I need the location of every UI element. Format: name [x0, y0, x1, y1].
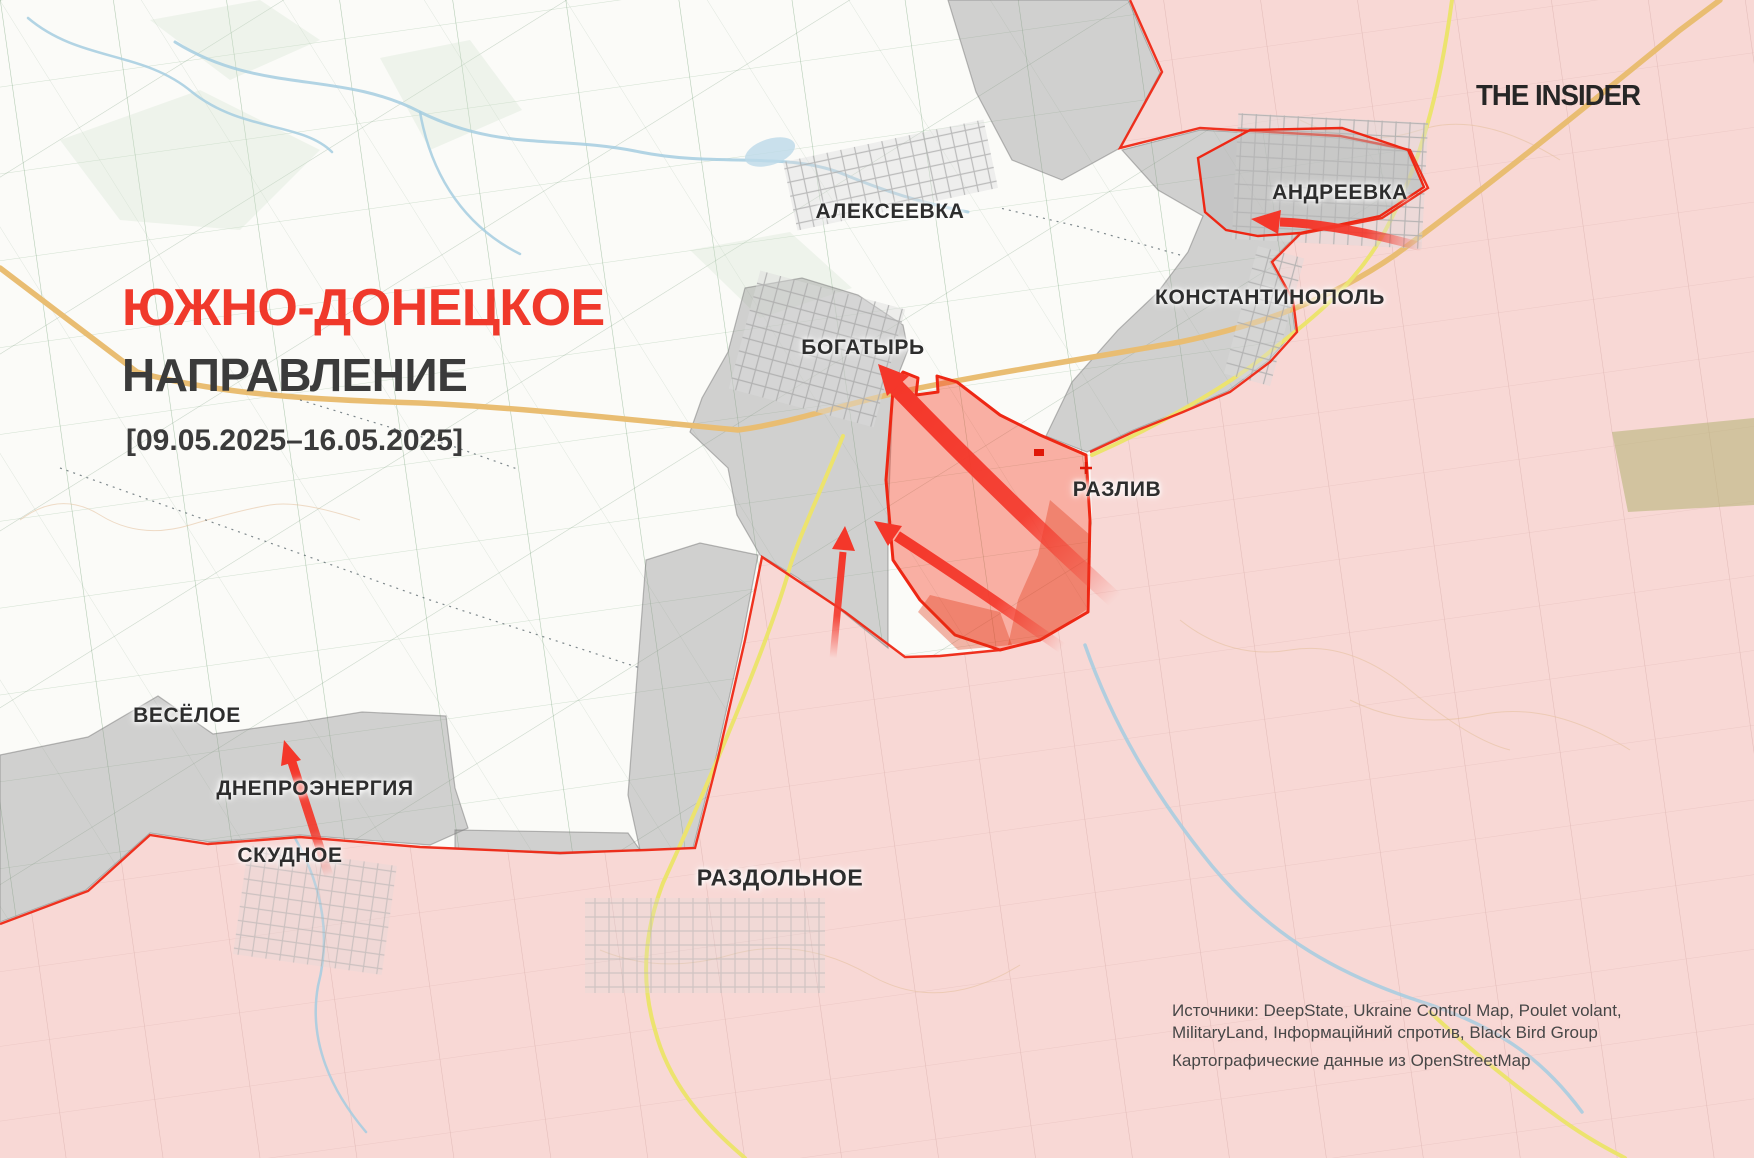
map-title-line1: ЮЖНО-ДОНЕЦКОЕ [122, 278, 605, 338]
map-date-range: [09.05.2025–16.05.2025] [126, 424, 463, 458]
town-label-vesyoloe: ВЕСЁЛОЕ [133, 704, 241, 728]
map-graphics [0, 0, 1754, 1158]
sources-attribution-osm: Картографические данные из OpenStreetMap [1172, 1051, 1531, 1071]
sources-line-1: Источники: DeepState, Ukraine Control Ma… [1172, 1001, 1622, 1021]
town-label-skudnoe: СКУДНОЕ [237, 844, 342, 868]
town-label-razdolnoe: РАЗДОЛЬНОЕ [697, 865, 864, 892]
the-insider-logo: THE INSIDER [1476, 80, 1640, 113]
map-title-line2: НАПРАВЛЕНИЕ [122, 348, 467, 402]
town-label-konstantinopol: КОНСТАНТИНОПОЛЬ [1155, 286, 1385, 310]
town-label-razliv: РАЗЛИВ [1073, 478, 1162, 502]
sources-line-2: MilitaryLand, Інформаційний спротив, Bla… [1172, 1023, 1598, 1043]
town-label-alekseevka: АЛЕКСЕЕВКА [815, 200, 964, 224]
poi-square-marker [1034, 449, 1044, 456]
town-label-bogatyr: БОГАТЫРЬ [801, 336, 924, 360]
olive-field-patch [1612, 418, 1754, 512]
urban-street-grid [585, 898, 825, 993]
town-label-dneproenergia: ДНЕПРОЭНЕРГИЯ [216, 777, 413, 801]
war-map-canvas: ЮЖНО-ДОНЕЦКОЕ НАПРАВЛЕНИЕ [09.05.2025–16… [0, 0, 1754, 1158]
town-label-andreevka: АНДРЕЕВКА [1272, 181, 1408, 205]
